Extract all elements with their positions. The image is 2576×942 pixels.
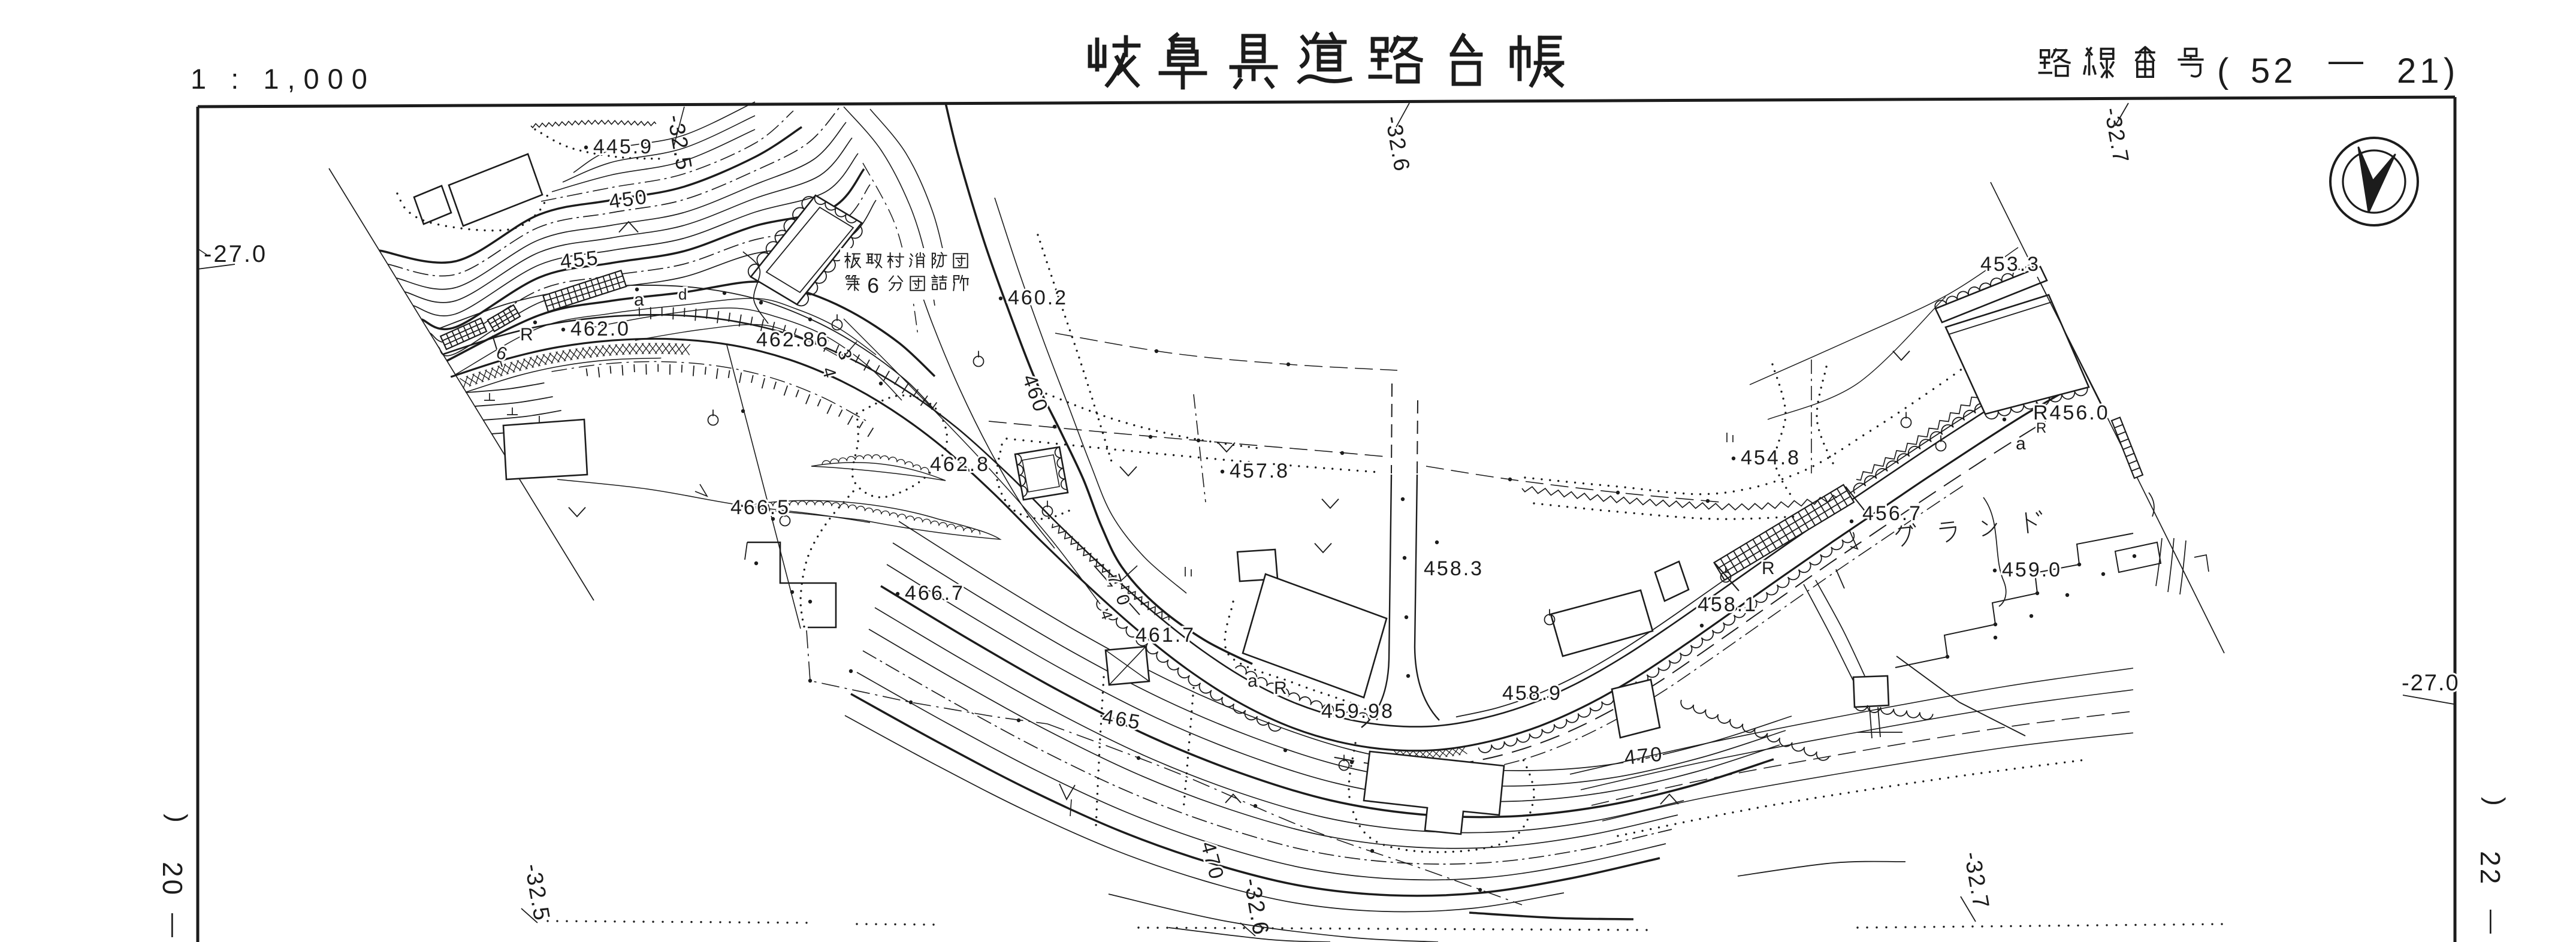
svg-text:462.8: 462.8 [930,453,990,476]
svg-text:458.3: 458.3 [1424,557,1484,580]
svg-text:21: 21 [2397,52,2443,90]
svg-text:): ) [2444,52,2455,90]
svg-text:459.0: 459.0 [2002,558,2062,581]
svg-text:453.3: 453.3 [1980,253,2040,276]
svg-text:460.2: 460.2 [1008,286,1068,309]
svg-text:454.8: 454.8 [1741,446,1801,469]
svg-text:): ) [163,814,192,823]
svg-text:22: 22 [2475,851,2506,886]
svg-text:R: R [1274,678,1287,698]
svg-text:462.0: 462.0 [570,318,630,340]
svg-text:): ) [2481,797,2510,806]
svg-text:466.5: 466.5 [730,496,790,519]
svg-text:a: a [2016,434,2026,454]
svg-text:—: — [2479,910,2505,934]
svg-text:458.9: 458.9 [1502,682,1562,705]
svg-text:6: 6 [867,273,879,297]
svg-text:d: d [678,285,687,303]
svg-text:—: — [161,913,187,937]
svg-text:a: a [634,290,644,310]
svg-text:—: — [2329,41,2363,80]
svg-text:R: R [1762,558,1775,578]
svg-text:R: R [2036,420,2046,436]
svg-text:456.7: 456.7 [1862,502,1922,525]
svg-text:470: 470 [1623,742,1665,769]
svg-text:466.7: 466.7 [905,582,965,605]
svg-text:455: 455 [559,246,600,273]
svg-text:445.9: 445.9 [593,135,653,158]
svg-text:20: 20 [157,862,188,897]
svg-text:457.8: 457.8 [1230,460,1289,482]
svg-text:(: ( [2217,52,2228,90]
svg-text:1 : 1,000: 1 : 1,000 [191,63,376,95]
svg-text:459.98: 459.98 [1321,700,1394,723]
svg-text:461.7: 461.7 [1136,624,1195,647]
svg-text:52: 52 [2251,52,2297,90]
svg-text:-27.0: -27.0 [204,241,267,267]
svg-text:R: R [520,325,533,345]
svg-text:-27.0: -27.0 [2402,671,2460,696]
svg-text:462.86: 462.86 [756,328,829,351]
svg-text:458.1: 458.1 [1698,593,1757,616]
svg-text:a: a [1248,671,1258,691]
